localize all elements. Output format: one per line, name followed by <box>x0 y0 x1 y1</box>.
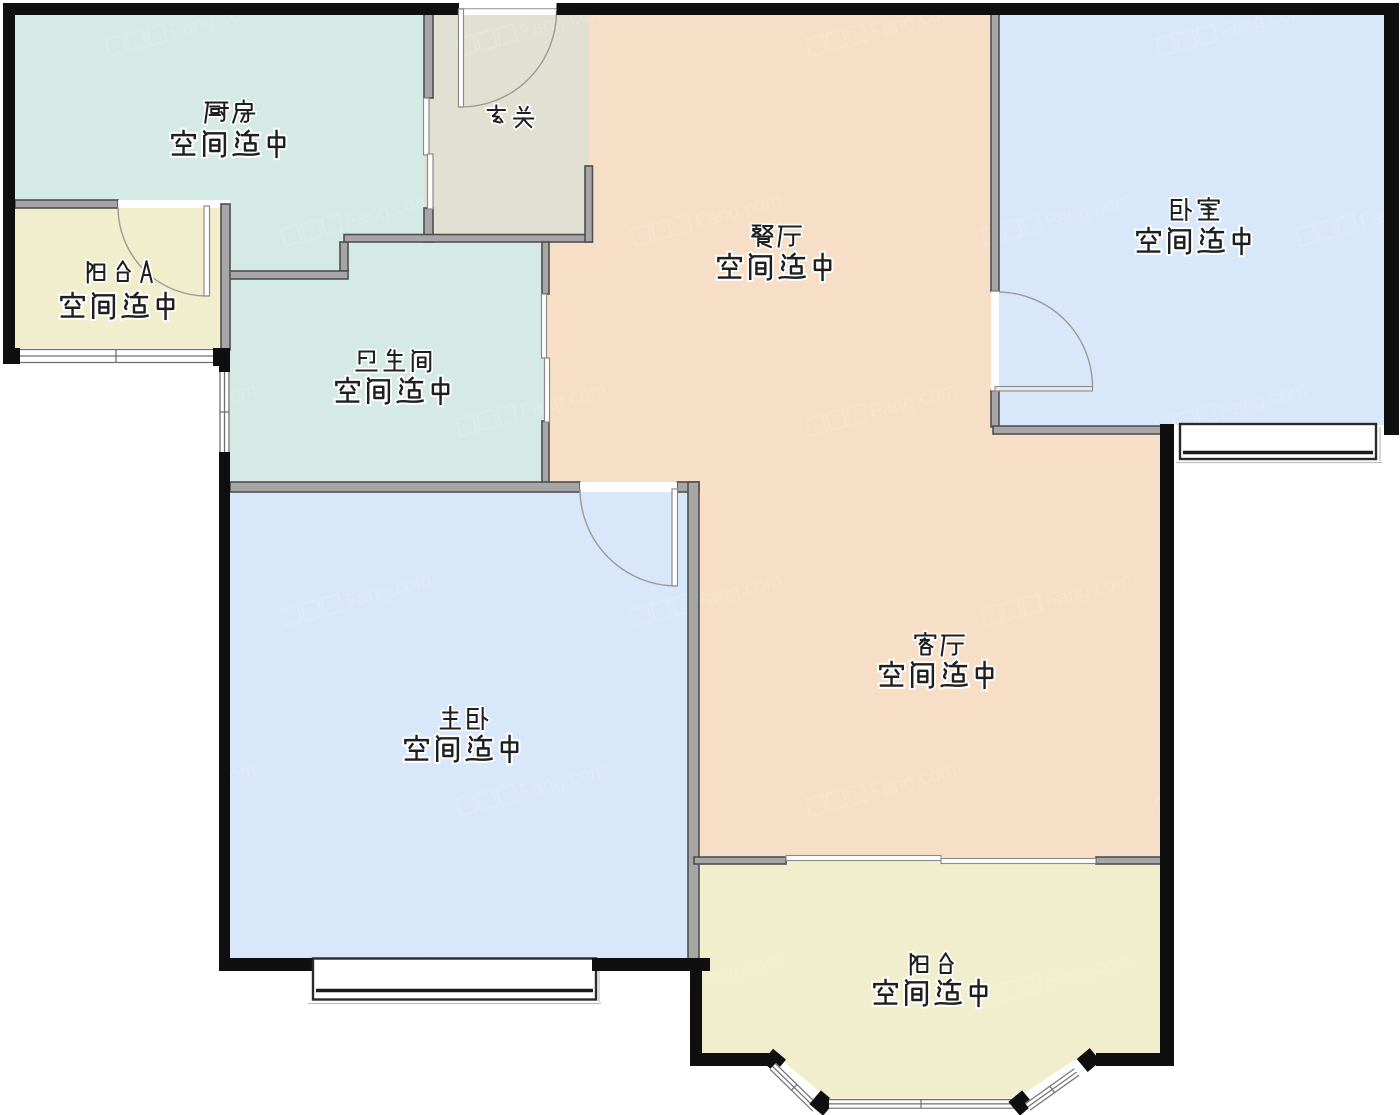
svg-text:Fang.com: Fang.com <box>1217 759 1309 803</box>
svg-text:Fang.com: Fang.com <box>1357 569 1400 613</box>
svg-text:Fang.com: Fang.com <box>1357 949 1400 993</box>
